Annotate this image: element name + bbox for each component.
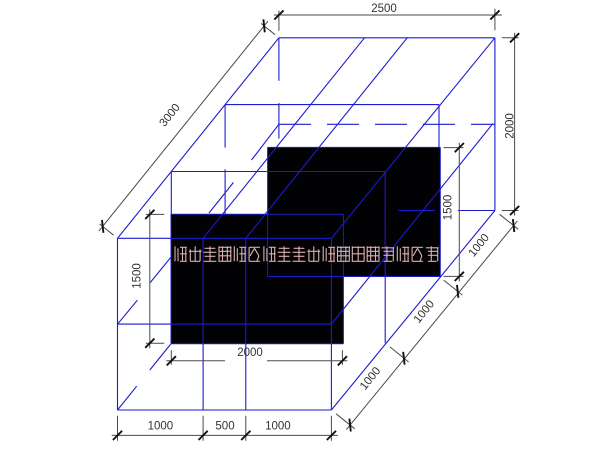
svg-text:2500: 2500 xyxy=(371,3,397,15)
svg-text:1500: 1500 xyxy=(443,195,455,221)
svg-text:2000: 2000 xyxy=(237,347,263,359)
svg-text:1000: 1000 xyxy=(148,420,174,432)
svg-text:2000: 2000 xyxy=(505,113,517,139)
svg-text:500: 500 xyxy=(215,420,234,432)
svg-text:1500: 1500 xyxy=(132,263,144,289)
svg-text:1000: 1000 xyxy=(265,420,291,432)
